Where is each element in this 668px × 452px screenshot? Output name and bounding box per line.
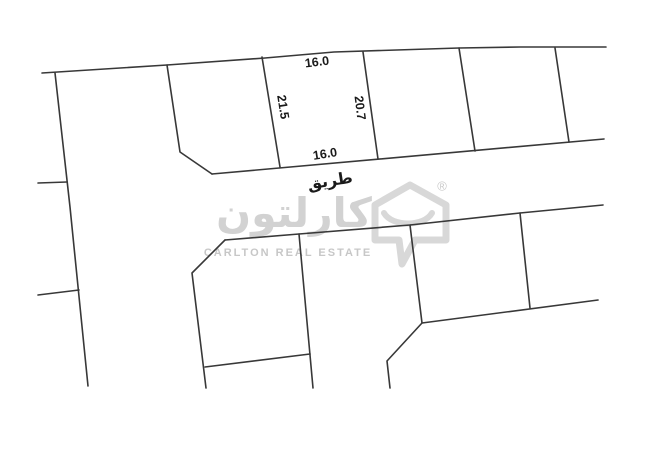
cadastral-map: كارلتون CARLTON REAL ESTATE ® 16.0 21.5 … <box>0 0 668 452</box>
dimension-label-bottom: 16.0 <box>312 145 338 163</box>
road-label: طريق <box>306 168 354 195</box>
dimension-label-left: 21.5 <box>274 94 292 120</box>
dimension-label-top: 16.0 <box>304 54 330 71</box>
dimension-label-right: 20.7 <box>352 95 369 121</box>
labels-layer: 16.0 21.5 20.7 16.0 طريق <box>0 0 668 452</box>
